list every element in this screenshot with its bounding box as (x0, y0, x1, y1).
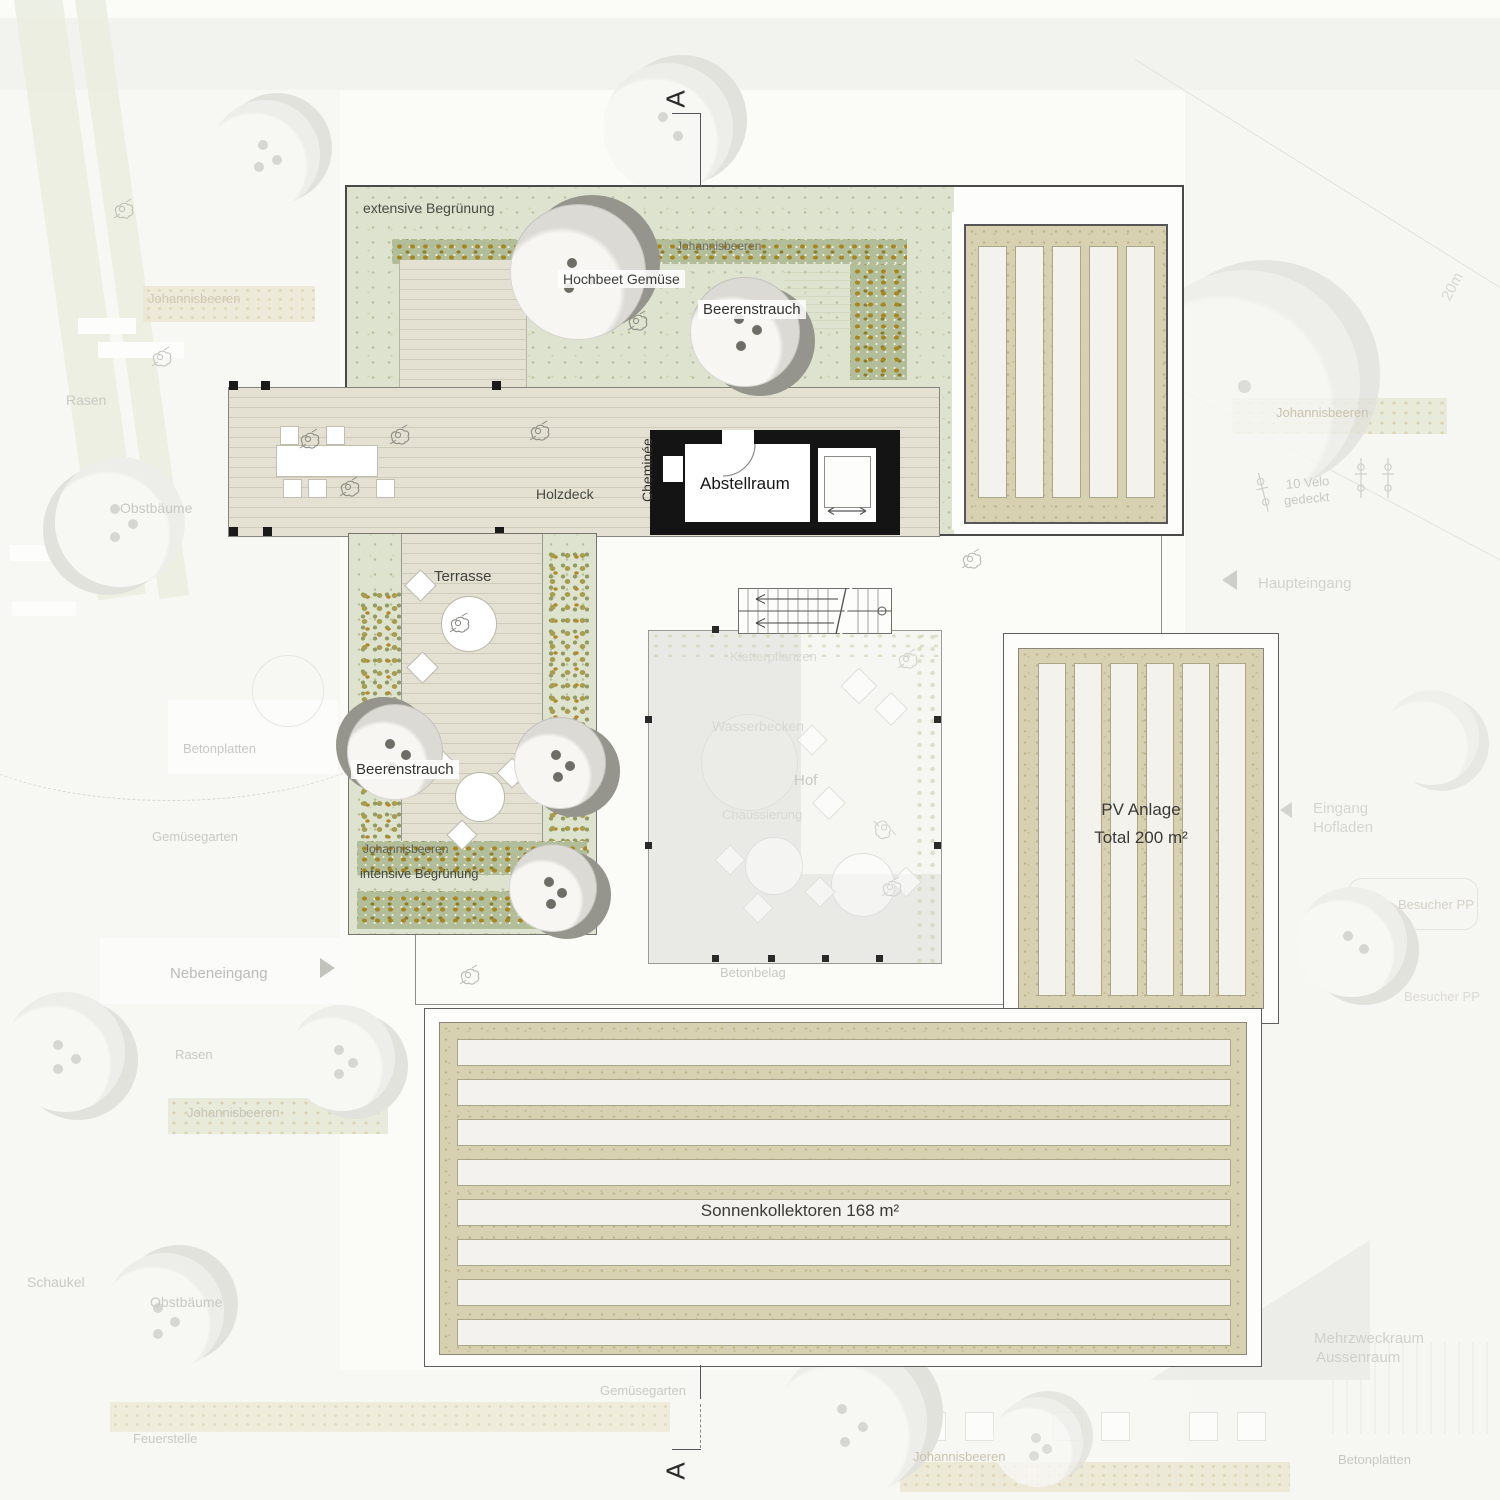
figure-sketch (448, 612, 476, 640)
tree (993, 1397, 1083, 1487)
climbing-plant-fringe (913, 631, 941, 963)
column (263, 527, 272, 536)
tree (106, 1253, 224, 1371)
figure-sketch (864, 816, 899, 851)
bg-label-gemuesegarten-s: Gemüsegarten (600, 1384, 686, 1399)
chair (742, 892, 773, 923)
section-line-top-tick (672, 113, 701, 114)
bg-label-gemuesegarten-w: Gemüsegarten (152, 830, 238, 845)
bg-label-mehrzweck-line2: Aussenraum (1316, 1349, 1400, 1366)
label-extensive-begruenung: extensive Begrünung (363, 200, 495, 216)
pv-panel (1126, 246, 1155, 498)
section-marker-bottom: A (662, 1462, 692, 1479)
label-johannisbeeren-left: Johannisbeeren (363, 843, 448, 857)
currant-hedge-band (850, 264, 907, 380)
tree (55, 457, 185, 587)
background-top-band (0, 18, 1500, 90)
label-wasserbecken: Wasserbecken (712, 718, 804, 734)
bg-label-besucher-pp-2: Besucher PP (1404, 990, 1480, 1005)
background-hedge-band (900, 1462, 1290, 1492)
background-hedge-band (110, 1402, 670, 1432)
column (492, 381, 501, 390)
column (645, 716, 652, 723)
tree (690, 277, 800, 387)
column (645, 842, 652, 849)
tree (1384, 690, 1479, 785)
bg-label-betonplatten-w: Betonplatten (183, 742, 256, 757)
collector-strip (457, 1079, 1231, 1106)
bg-label-nebeneingang: Nebeneingang (170, 965, 268, 982)
label-hof: Hof (794, 772, 817, 789)
chair (280, 426, 299, 445)
column (229, 381, 238, 390)
entrance-arrow-icon (320, 958, 335, 978)
background-bed (12, 602, 76, 616)
label-beerenstrauch-top: Beerenstrauch (698, 300, 806, 319)
column (712, 626, 719, 633)
figure-sketch (458, 964, 484, 990)
column (768, 955, 775, 962)
column (822, 955, 829, 962)
pv-panel (1089, 246, 1118, 498)
collector-strip (457, 1159, 1231, 1186)
figure-sketch (880, 876, 906, 902)
table (745, 837, 803, 895)
bg-label-johannisbeeren-nw: Johannisbeeren (148, 292, 241, 307)
column (876, 955, 883, 962)
collector-strip (457, 1119, 1231, 1146)
bg-label-johannisbeeren-sw: Johannisbeeren (187, 1106, 280, 1121)
tree (347, 704, 443, 800)
bg-label-obstbaeume-sw: Obstbäume (150, 1294, 222, 1310)
tree (289, 1005, 395, 1111)
entrance-arrow-icon (1222, 570, 1237, 590)
label-hochbeet-gemuese: Hochbeet Gemüse (558, 270, 685, 288)
door-opening (722, 430, 754, 444)
column (261, 381, 270, 390)
figure-sketch (388, 424, 416, 452)
bg-label-haupteingang: Haupteingang (1258, 575, 1351, 592)
elevator-arrow-icon (824, 505, 870, 517)
pv-panel (1015, 246, 1044, 498)
bg-label-obstbaeume-w: Obstbäume (120, 500, 192, 516)
pv-label: PV Anlage Total 200 m² (1004, 800, 1278, 848)
figure-sketch (150, 346, 176, 372)
section-line-bottom-tick (672, 1449, 701, 1450)
label-betonbelag: Betonbelag (720, 966, 786, 981)
section-marker-top: A (662, 90, 692, 107)
elevator-car-outline (824, 456, 871, 508)
tree (1297, 887, 1407, 997)
bg-label-eingang-line1: Eingang (1313, 800, 1368, 817)
background-square (1189, 1412, 1218, 1441)
label-beerenstrauch-left: Beerenstrauch (351, 760, 459, 779)
chimney-compartment (663, 456, 683, 482)
bg-label-johannisbeeren-s: Johannisbeeren (913, 1450, 1006, 1465)
pv-label-line1: PV Anlage (1004, 800, 1278, 820)
label-kletterpflanzen: Kletterpflanzen (730, 650, 817, 665)
raised-bed-deck (399, 260, 527, 389)
label-holzdeck: Holzdeck (536, 486, 594, 502)
chair (283, 479, 302, 498)
chair (326, 426, 345, 445)
bg-label-schaukel: Schaukel (27, 1274, 85, 1290)
background-square (1237, 1412, 1266, 1441)
label-intensive-begruenung: intensive Begrünung (360, 867, 479, 882)
figure-sketch (528, 420, 556, 448)
label-terrasse: Terrasse (434, 568, 492, 585)
staircase (738, 588, 892, 634)
solar-label: Sonnenkollektoren 168 m² (440, 1201, 1160, 1221)
pv-panel (978, 246, 1007, 498)
bg-label-mehrzweck-line1: Mehrzweckraum (1314, 1330, 1424, 1347)
collector-strip (457, 1319, 1231, 1346)
figure-sketch (298, 428, 324, 454)
background-bed (78, 318, 136, 334)
bicycle-icon (1355, 458, 1369, 504)
pv-panel (1052, 246, 1081, 498)
tree (210, 100, 320, 210)
chair (376, 479, 395, 498)
bicycle-icon (1382, 458, 1396, 504)
figure-sketch (896, 648, 922, 674)
pv-label-line2: Total 200 m² (1004, 828, 1278, 848)
figure-sketch (112, 198, 136, 222)
label-abstellraum: Abstellraum (700, 474, 790, 494)
bg-label-johannisbeeren-ne: Johannisbeeren (1276, 406, 1369, 421)
figure-sketch (626, 310, 656, 340)
pv-array-area: PV Anlage Total 200 m² (1003, 633, 1279, 1024)
bg-label-rasen-sw: Rasen (175, 1048, 213, 1063)
tree (5, 992, 125, 1112)
label-cheminee: Cheminée (639, 415, 655, 525)
bg-label-besucher-pp-1: Besucher PP (1398, 898, 1474, 913)
courtyard-area (648, 630, 942, 964)
background-square (965, 1412, 994, 1441)
figure-sketch (338, 476, 366, 504)
table (276, 445, 378, 477)
table (455, 772, 505, 822)
section-line-bottom-dash (700, 1404, 701, 1448)
bg-label-eingang-line2: Hofladen (1313, 819, 1373, 836)
entrance-arrow-icon (1280, 802, 1292, 818)
tree-outline (252, 655, 324, 727)
section-line-bottom (700, 1365, 701, 1399)
tree (603, 63, 733, 193)
solar-collector-area: Sonnenkollektoren 168 m² (424, 1008, 1262, 1367)
chair (714, 844, 745, 875)
collector-strip (457, 1239, 1231, 1266)
tree (509, 844, 597, 932)
bg-label-betonplatten-se: Betonplatten (1338, 1453, 1411, 1468)
tree (777, 1347, 927, 1497)
background-square (1101, 1412, 1130, 1441)
section-line-top (700, 113, 701, 186)
collector-strip (457, 1279, 1231, 1306)
background-dashed-path (0, 640, 400, 801)
label-chaussierung: Chaussierung (722, 808, 802, 823)
site-plan-canvas: Johannisbeeren Rasen Obstbäume Betonplat… (0, 0, 1500, 1500)
column (712, 955, 719, 962)
column (934, 716, 941, 723)
solar-zone-field (964, 224, 1168, 524)
column (934, 842, 941, 849)
bg-label-feuerstelle: Feuerstelle (133, 1432, 197, 1447)
solar-field: Sonnenkollektoren 168 m² (439, 1022, 1247, 1355)
column (229, 527, 238, 536)
figure-sketch (960, 548, 984, 572)
chair (308, 479, 327, 498)
shrub-scatter (545, 549, 589, 879)
label-johannisbeeren-hedge: Johannisbeeren (676, 240, 761, 254)
collector-strip (457, 1039, 1231, 1066)
bg-label-rasen-w: Rasen (66, 392, 106, 408)
tree (514, 717, 606, 809)
